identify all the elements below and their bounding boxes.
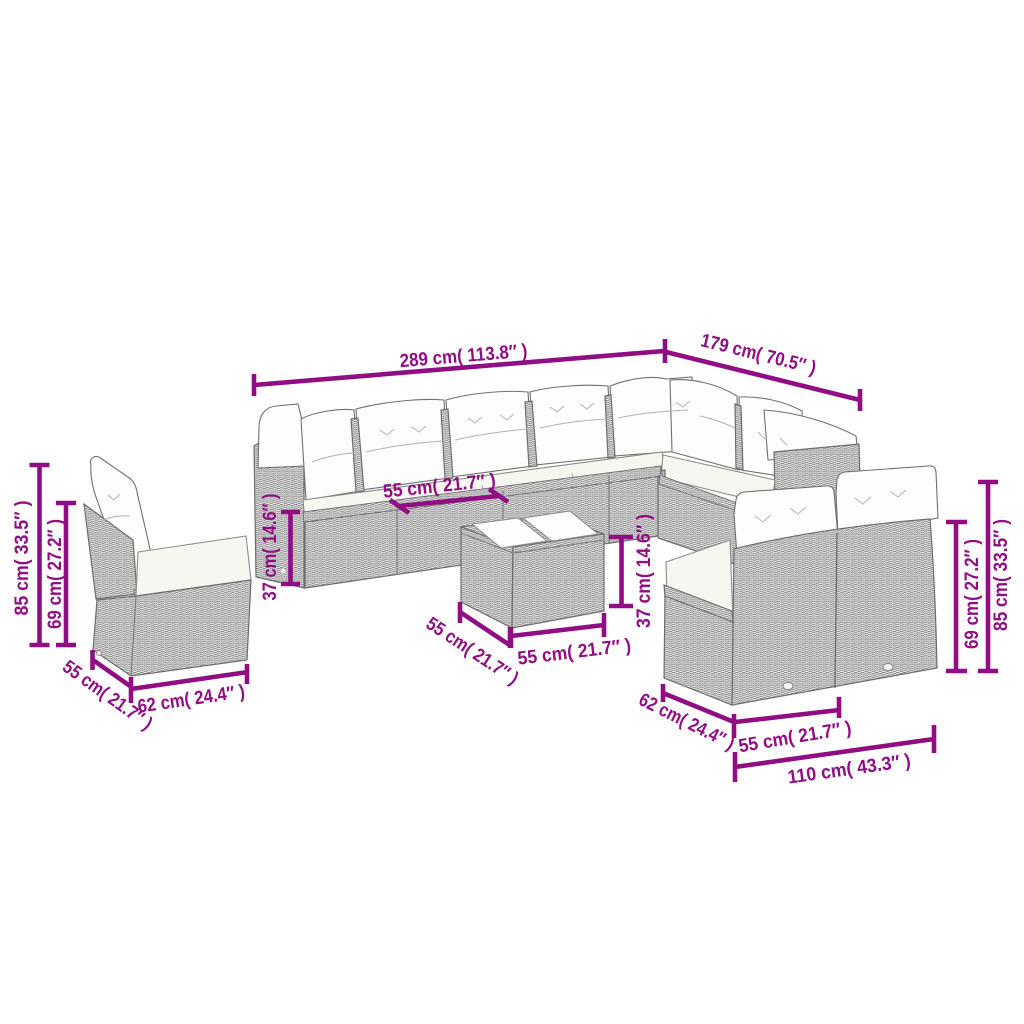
svg-text:37 cm( 14.6″ ): 37 cm( 14.6″ ) [634, 514, 655, 628]
svg-text:69 cm( 27.2″ ): 69 cm( 27.2″ ) [962, 539, 983, 649]
svg-text:85 cm( 33.5″ ): 85 cm( 33.5″ ) [12, 501, 33, 616]
svg-text:69 cm( 27.2″ ): 69 cm( 27.2″ ) [45, 519, 66, 629]
svg-text:85 cm( 33.5″ ): 85 cm( 33.5″ ) [991, 519, 1012, 631]
svg-text:37 cm( 14.6″ ): 37 cm( 14.6″ ) [260, 494, 281, 601]
